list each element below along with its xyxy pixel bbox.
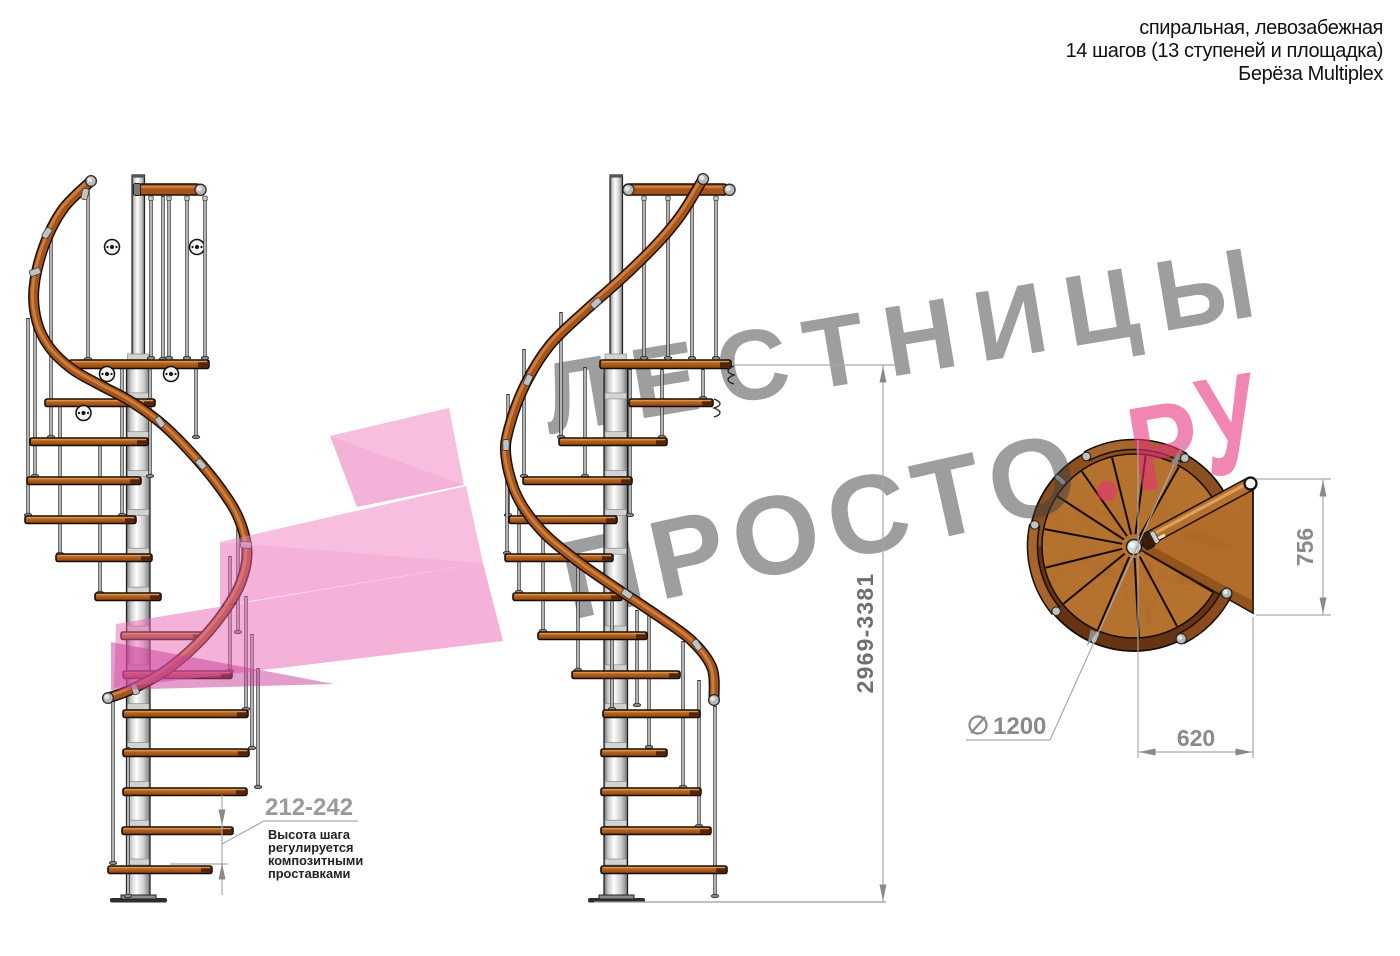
svg-text:спиральная, левозабежная: спиральная, левозабежная <box>1139 17 1383 39</box>
svg-text:14 шагов (13 ступеней и площад: 14 шагов (13 ступеней и площадка) <box>1066 40 1383 62</box>
svg-text:Берёза Multiplex: Берёза Multiplex <box>1238 63 1383 85</box>
svg-text:1200: 1200 <box>993 713 1046 740</box>
svg-text:212-242: 212-242 <box>265 794 353 821</box>
svg-text:2969-3381: 2969-3381 <box>852 573 878 694</box>
svg-text:проставками: проставками <box>268 866 350 881</box>
svg-text:756: 756 <box>1292 528 1318 566</box>
svg-text:620: 620 <box>1177 725 1215 751</box>
